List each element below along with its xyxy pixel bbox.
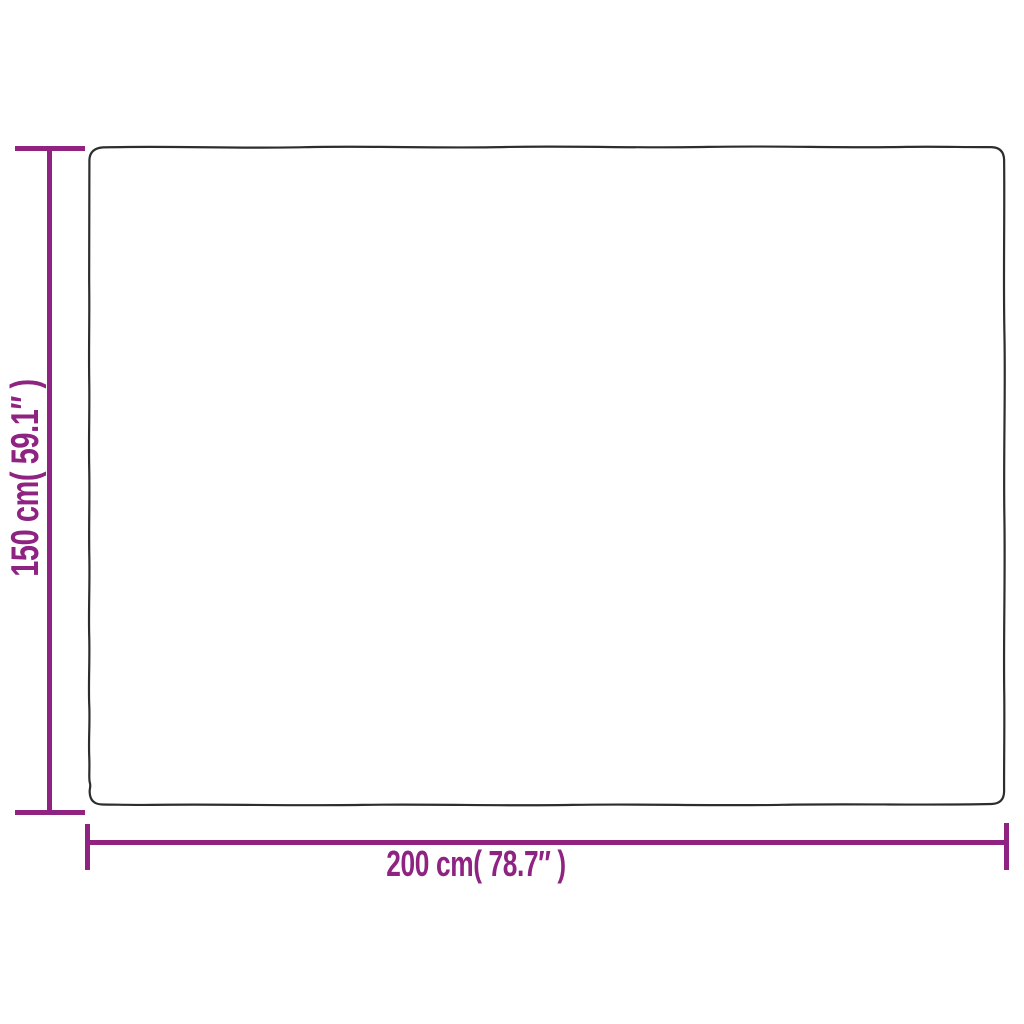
product-outline-path [89,146,1005,805]
height-dimension-cap-top [15,146,85,151]
width-dimension-label: 200 cm( 78.7″ ) [386,843,566,885]
width-dimension-cap-left [85,824,90,870]
height-dimension-cap-bottom [15,810,85,815]
height-dimension-label: 150 cm( 59.1″ ) [4,379,48,577]
width-dimension-cap-right [1004,823,1009,870]
dimension-diagram: 150 cm( 59.1″ ) 200 cm( 78.7″ ) [0,0,1024,1024]
